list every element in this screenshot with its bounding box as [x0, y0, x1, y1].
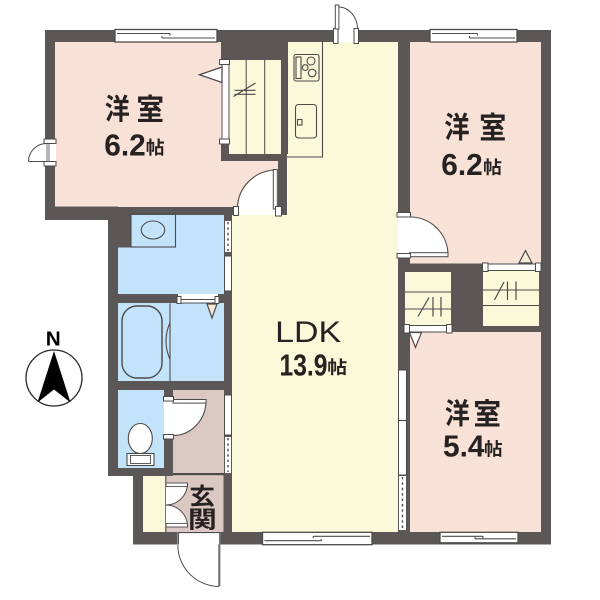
svg-text:6.2: 6.2: [441, 147, 483, 182]
svg-text:13.9: 13.9: [280, 347, 328, 382]
svg-text:6.2: 6.2: [104, 128, 146, 163]
svg-text:N: N: [46, 328, 61, 350]
svg-text:5.4: 5.4: [443, 429, 485, 464]
svg-text:LDK: LDK: [275, 316, 341, 349]
